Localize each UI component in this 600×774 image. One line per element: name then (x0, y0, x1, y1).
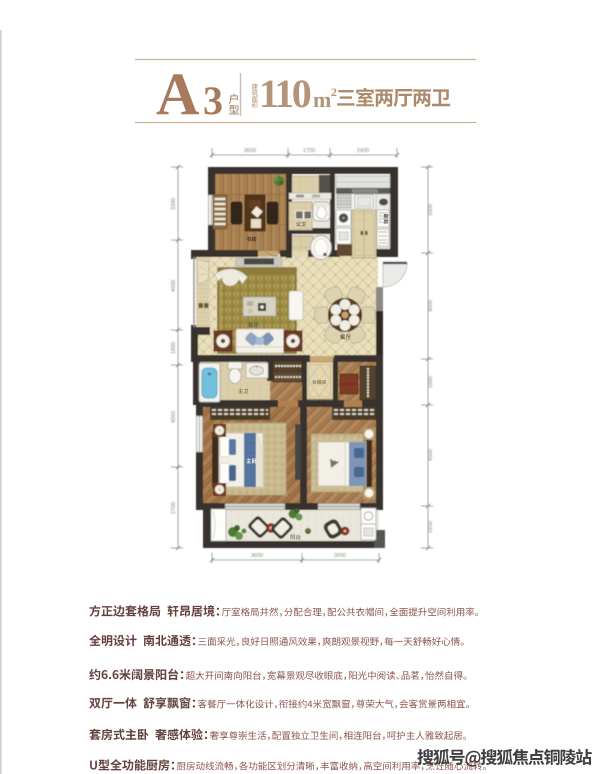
svg-text:3300: 3300 (428, 204, 434, 216)
svg-text:2700: 2700 (171, 502, 177, 514)
svg-text:3: 3 (203, 78, 223, 123)
svg-text:2: 2 (331, 85, 337, 99)
svg-text:4050: 4050 (171, 411, 177, 423)
svg-text:3600: 3600 (244, 148, 256, 154)
svg-text:1700: 1700 (303, 148, 315, 154)
svg-text:3300: 3300 (171, 198, 177, 210)
svg-text:4000: 4000 (428, 300, 434, 312)
svg-text:3000: 3000 (334, 553, 346, 559)
svg-text:A: A (156, 61, 199, 127)
svg-text:1880: 1880 (428, 376, 434, 388)
svg-text:4500: 4500 (428, 449, 434, 461)
svg-text:m: m (313, 87, 331, 112)
svg-text:1800: 1800 (171, 342, 177, 354)
svg-text:2400: 2400 (357, 148, 369, 154)
svg-text:4000: 4000 (171, 280, 177, 292)
svg-text:3600: 3600 (251, 553, 263, 559)
svg-text:1650: 1650 (428, 521, 434, 533)
svg-text:110: 110 (259, 71, 311, 116)
